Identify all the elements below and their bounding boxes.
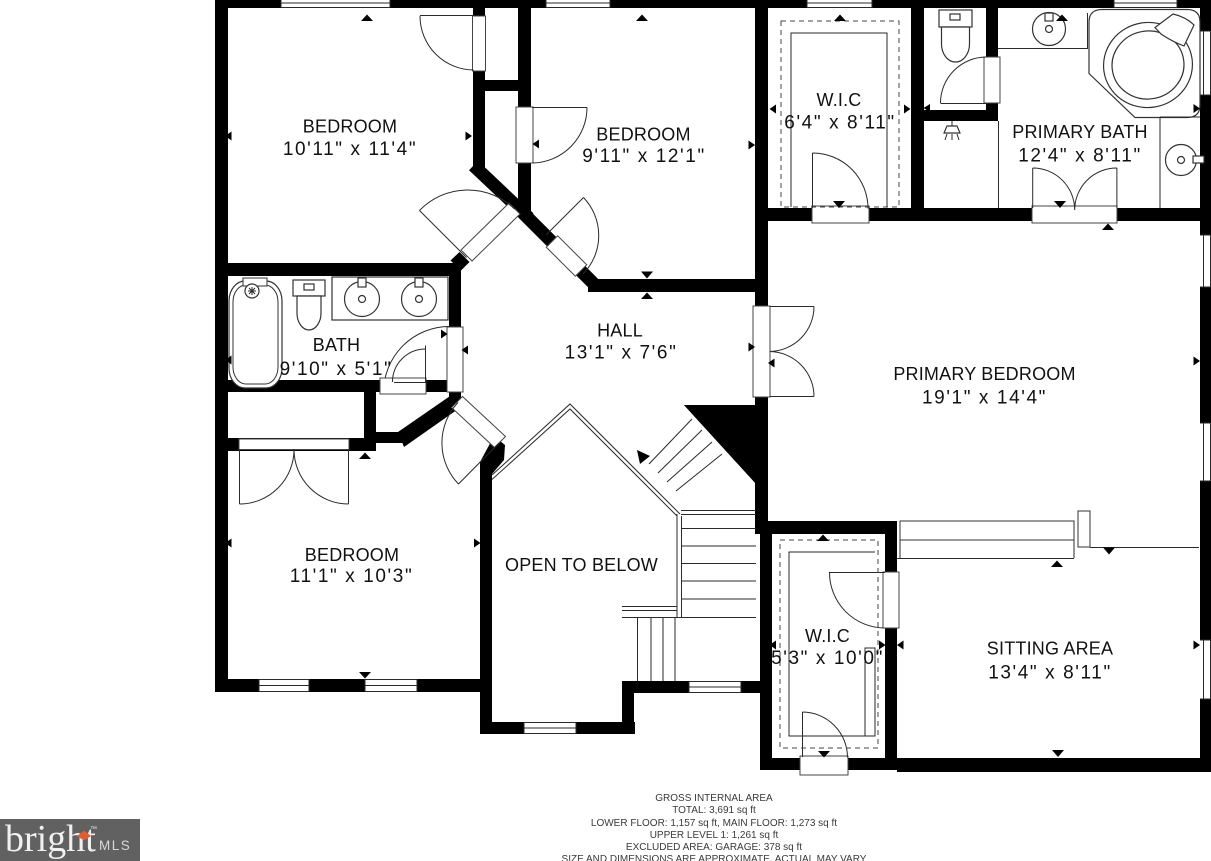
svg-text:GROSS INTERNAL AREA: GROSS INTERNAL AREA bbox=[655, 793, 773, 804]
svg-text:W.I.C: W.I.C bbox=[817, 90, 862, 110]
svg-text:PRIMARY BATH: PRIMARY BATH bbox=[1012, 122, 1147, 142]
svg-text:PRIMARY BEDROOM: PRIMARY BEDROOM bbox=[893, 364, 1075, 384]
svg-text:W.I.C: W.I.C bbox=[805, 626, 850, 646]
svg-text:5'3" x 10'0": 5'3" x 10'0" bbox=[771, 648, 884, 669]
svg-text:BEDROOM: BEDROOM bbox=[303, 117, 397, 137]
svg-text:11'1" x 10'3": 11'1" x 10'3" bbox=[290, 566, 414, 587]
svg-text:BEDROOM: BEDROOM bbox=[596, 125, 690, 145]
svg-text:OPEN TO BELOW: OPEN TO BELOW bbox=[505, 555, 658, 575]
svg-text:13'1" x 7'6": 13'1" x 7'6" bbox=[565, 343, 678, 364]
svg-text:13'4" x 8'11": 13'4" x 8'11" bbox=[988, 663, 1112, 684]
svg-text:9'11" x 12'1": 9'11" x 12'1" bbox=[582, 146, 706, 167]
svg-text:UPPER LEVEL 1: 1,261 sq ft: UPPER LEVEL 1: 1,261 sq ft bbox=[650, 830, 779, 841]
svg-text:HALL: HALL bbox=[597, 321, 643, 341]
svg-text:19'1" x 14'4": 19'1" x 14'4" bbox=[922, 388, 1047, 409]
svg-text:9'10" x 5'1": 9'10" x 5'1" bbox=[280, 359, 393, 380]
svg-text:10'11" x 11'4": 10'11" x 11'4" bbox=[283, 139, 417, 160]
svg-text:MLS: MLS bbox=[99, 838, 131, 853]
svg-text:EXCLUDED AREA: GARAGE: 378 sq: EXCLUDED AREA: GARAGE: 378 sq ft bbox=[626, 842, 802, 853]
svg-text:™: ™ bbox=[90, 826, 97, 833]
svg-text:TOTAL: 3,691 sq ft: TOTAL: 3,691 sq ft bbox=[672, 805, 756, 816]
svg-text:SITTING AREA: SITTING AREA bbox=[987, 639, 1113, 659]
svg-text:BEDROOM: BEDROOM bbox=[305, 545, 399, 565]
svg-text:SIZE AND DIMENSIONS ARE APPROX: SIZE AND DIMENSIONS ARE APPROXIMATE, ACT… bbox=[562, 854, 867, 861]
svg-text:6'4" x 8'11": 6'4" x 8'11" bbox=[784, 113, 895, 134]
svg-text:12'4" x 8'11": 12'4" x 8'11" bbox=[1018, 146, 1142, 167]
svg-text:BATH: BATH bbox=[313, 335, 360, 355]
svg-text:LOWER FLOOR: 1,157 sq ft, MAIN: LOWER FLOOR: 1,157 sq ft, MAIN FLOOR: 1,… bbox=[591, 818, 837, 829]
